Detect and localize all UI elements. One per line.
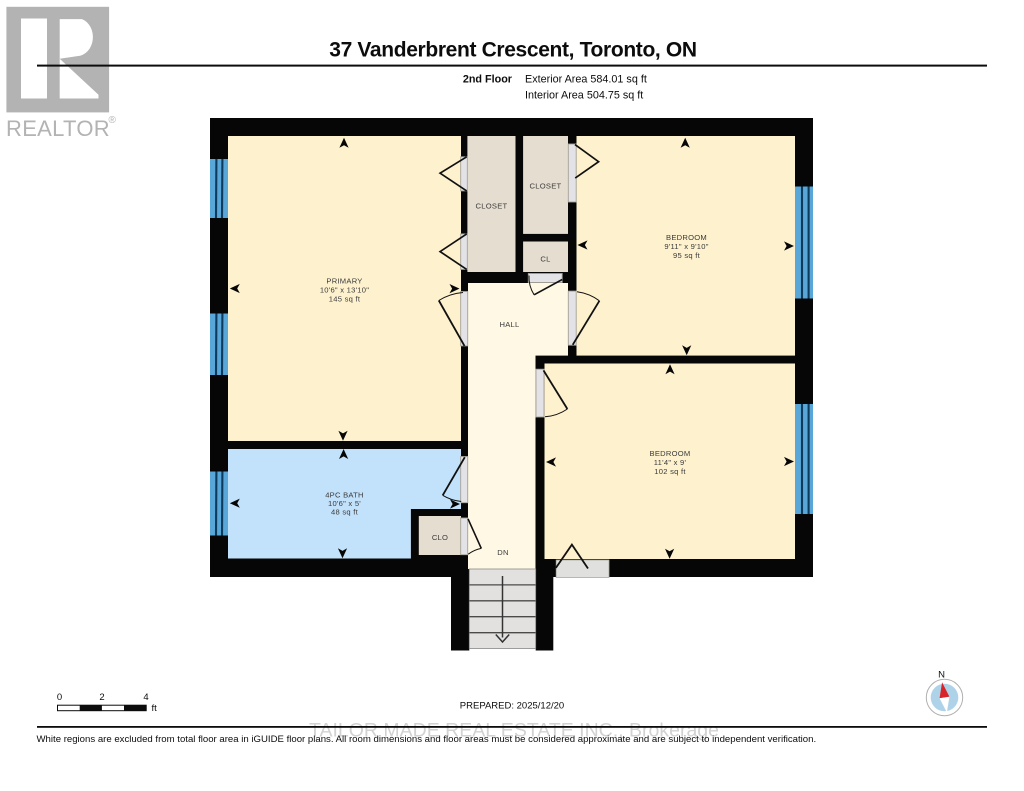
svg-text:PRIMARY: PRIMARY xyxy=(326,277,362,286)
svg-text:9'11" x 9'10": 9'11" x 9'10" xyxy=(664,242,708,251)
svg-text:102 sq ft: 102 sq ft xyxy=(654,467,686,476)
svg-text:CLOSET: CLOSET xyxy=(476,202,508,211)
svg-text:HALL: HALL xyxy=(500,320,520,329)
svg-text:PREPARED: 2025/12/20: PREPARED: 2025/12/20 xyxy=(460,701,564,712)
svg-text:CLOSET: CLOSET xyxy=(530,182,562,191)
svg-text:BEDROOM: BEDROOM xyxy=(650,449,691,458)
svg-text:48 sq ft: 48 sq ft xyxy=(331,508,359,517)
svg-text:0: 0 xyxy=(57,692,62,703)
svg-text:CL: CL xyxy=(540,255,550,264)
svg-text:11'4" x 9': 11'4" x 9' xyxy=(654,458,687,467)
svg-text:CLO: CLO xyxy=(432,533,448,542)
svg-text:145 sq ft: 145 sq ft xyxy=(329,295,361,304)
svg-text:Exterior Area 584.01 sq ft: Exterior Area 584.01 sq ft xyxy=(525,74,647,86)
svg-text:Interior Area 504.75 sq ft: Interior Area 504.75 sq ft xyxy=(525,90,643,102)
svg-text:ft: ft xyxy=(152,703,158,714)
svg-text:10'6" x 13'10": 10'6" x 13'10" xyxy=(320,286,369,295)
svg-text:BEDROOM: BEDROOM xyxy=(666,233,707,242)
svg-text:4: 4 xyxy=(143,692,148,703)
svg-text:White regions are excluded fro: White regions are excluded from total fl… xyxy=(37,734,817,745)
svg-text:®: ® xyxy=(109,115,117,126)
svg-text:95 sq ft: 95 sq ft xyxy=(673,251,701,260)
svg-text:DN: DN xyxy=(497,548,508,557)
svg-text:2nd Floor: 2nd Floor xyxy=(463,74,513,86)
svg-text:2: 2 xyxy=(99,692,104,703)
svg-text:REALTOR: REALTOR xyxy=(6,116,110,141)
svg-text:37 Vanderbrent Crescent, Toron: 37 Vanderbrent Crescent, Toronto, ON xyxy=(329,39,696,62)
